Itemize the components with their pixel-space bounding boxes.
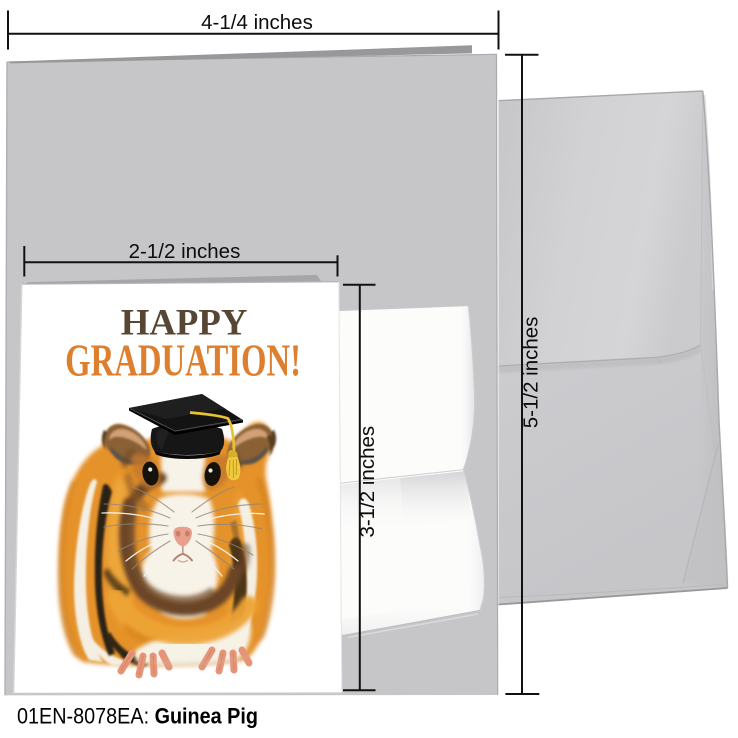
svg-text:4-1/4 inches: 4-1/4 inches (201, 11, 313, 34)
svg-text:3-1/2 inches: 3-1/2 inches (356, 426, 379, 538)
svg-text:GRADUATION!: GRADUATION! (65, 335, 301, 386)
svg-text:5-1/2 inches: 5-1/2 inches (520, 317, 543, 429)
svg-text:01EN-8078EA: Guinea Pig: 01EN-8078EA: Guinea Pig (17, 704, 258, 729)
svg-text:2-1/2 inches: 2-1/2 inches (129, 240, 241, 263)
